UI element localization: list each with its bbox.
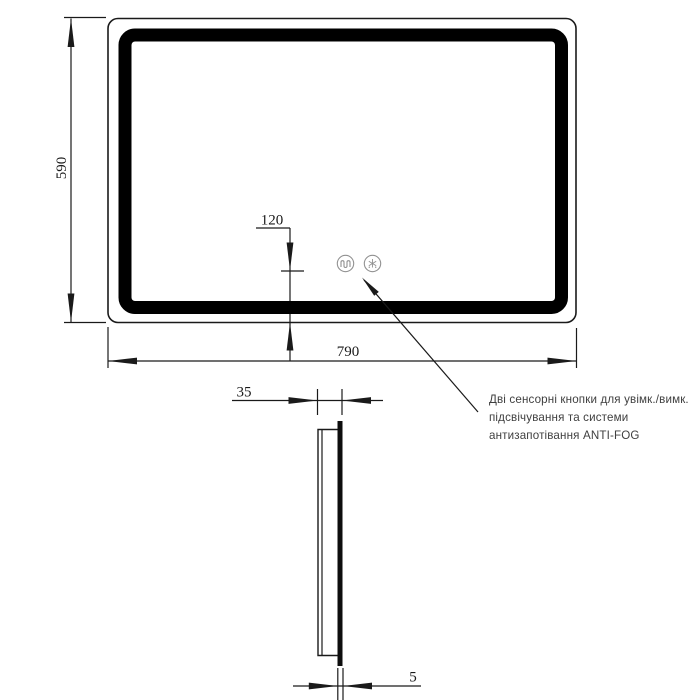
backing-profile-outline (318, 430, 338, 656)
glass-profile (338, 421, 343, 666)
arrow-left-icon (108, 358, 137, 365)
dim-height-label: 590 (54, 157, 70, 180)
arrow-up-icon (68, 19, 75, 48)
arrow-left-icon (342, 397, 371, 404)
dim-thickness-label: 5 (409, 670, 417, 686)
arrow-down-icon (68, 294, 75, 323)
mirror-front-view (108, 19, 576, 323)
annotation-line-2: підсвічування та системи (489, 411, 628, 424)
arrow-right-icon (548, 358, 577, 365)
dim-width-label: 790 (337, 344, 360, 360)
arrow-right-icon (289, 397, 318, 404)
arrow-left-icon (343, 683, 372, 690)
annotation-line-3: антизапотівання ANTI-FOG (489, 429, 640, 442)
technical-drawing-mirror: 590 790 120 (0, 0, 700, 700)
dim-thickness-5: 5 (293, 668, 421, 700)
annotation-text: Дві сенсорні кнопки для увімк./вимк. під… (489, 393, 689, 442)
drawing-svg: 590 790 120 (0, 0, 700, 700)
mirror-front-outline (108, 19, 576, 323)
arrow-up-icon (287, 323, 294, 351)
side-profile (318, 421, 343, 666)
mirror-side-view: 35 5 (232, 385, 421, 700)
annotation-line-1: Дві сенсорні кнопки для увімк./вимк. (489, 393, 689, 406)
dim-depth-35: 35 (232, 385, 383, 416)
dim-width-790: 790 (108, 327, 577, 368)
arrow-right-icon (309, 683, 338, 690)
dim-offset-label: 120 (261, 213, 284, 229)
dim-height-590: 590 (54, 18, 106, 323)
dim-depth-label: 35 (237, 385, 252, 401)
